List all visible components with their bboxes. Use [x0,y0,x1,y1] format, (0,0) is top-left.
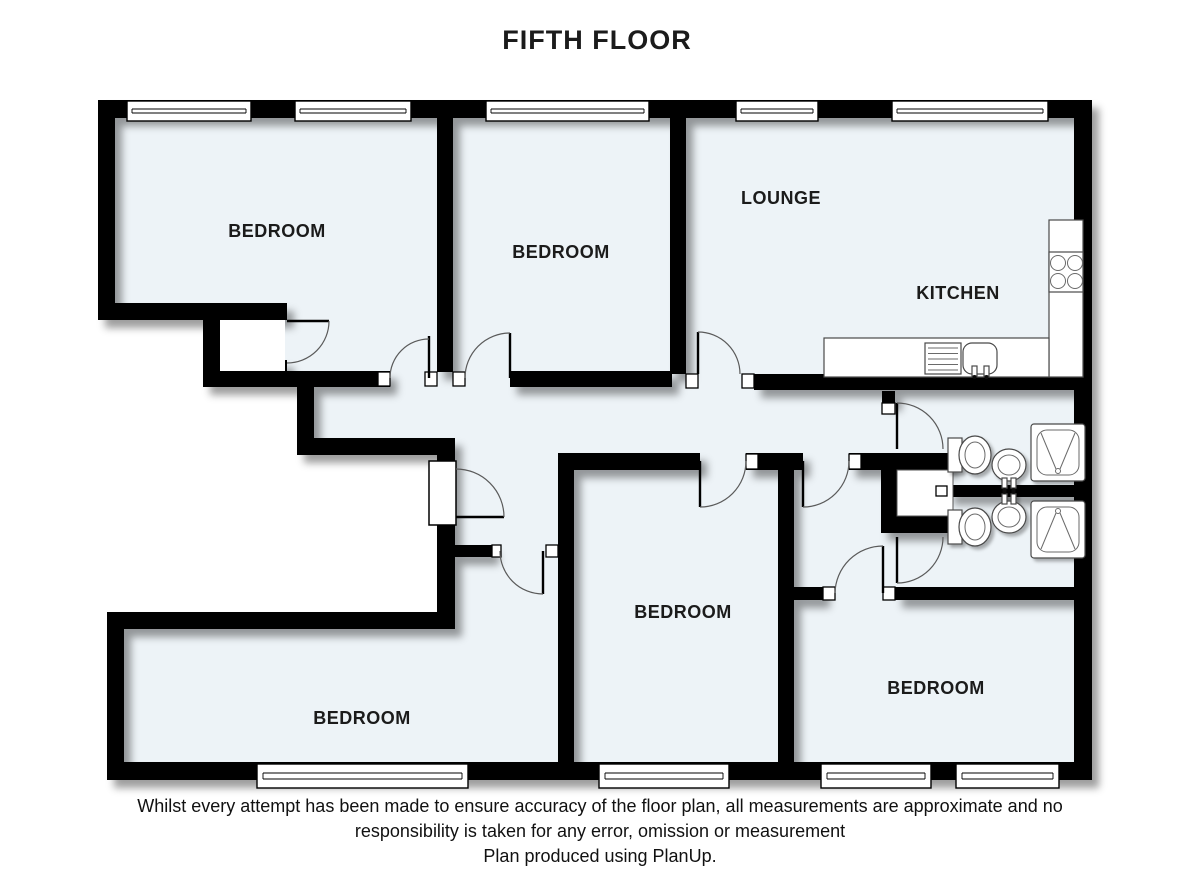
window [892,101,1048,121]
room-label-bedroom-bottom-left: BEDROOM [313,708,411,728]
shower [1031,501,1085,558]
wall-divider-bed2-lounge [670,118,686,374]
room-label-bedroom-top-middle: BEDROOM [512,242,610,262]
wall-bath-doorway-stub [882,391,895,403]
wall-bedroom4-right [778,453,794,763]
toilet [948,436,991,474]
wall-exterior-left [98,100,115,320]
disclaimer-line-3: Plan produced using PlanUp. [483,846,716,866]
wall-bedroom4-top-left [558,453,700,470]
wall-bedroom3-top-left [778,587,823,600]
wall-bed5-door [455,545,492,557]
kitchen-sink [925,343,997,379]
wall-bedroom4-left [558,453,574,763]
wall-lounge-bottom [754,374,824,390]
room-label-bedroom-bottom-middle: BEDROOM [634,602,732,622]
wall-bedroom3-top-right [895,587,1074,600]
floor-plan-canvas: FIFTH FLOOR [0,0,1200,872]
wall-bedroom1-bottom [98,303,287,320]
wall-lobby-top [849,453,953,470]
wall-bedroom5-top [107,612,444,629]
disclaimer-line-1: Whilst every attempt has been made to en… [137,796,1063,816]
room-label-bedroom-bottom-right: BEDROOM [887,678,985,698]
wall-divider-bed1-bed2 [437,118,453,372]
floorplan-page: FIFTH FLOOR [0,0,1200,872]
room-label-lounge: LOUNGE [741,188,821,208]
disclaimer: Whilst every attempt has been made to en… [137,796,1063,866]
window [127,101,251,121]
disclaimer-line-2: responsibility is taken for any error, o… [355,821,845,841]
cupboard-void [220,320,285,371]
wall-bedroom5-left [107,612,124,780]
wall-duct-bottom [881,516,953,533]
room-label-kitchen: KITCHEN [916,283,1000,303]
wall-hall-bottom [297,438,455,455]
shower [1031,424,1085,481]
window [257,764,468,788]
room-label-bedroom-top-left: BEDROOM [228,221,326,241]
window [956,764,1059,788]
wall-step-horizontal [203,371,390,387]
wall-bedroom2-bottom [510,371,672,387]
entrance-door-frame [429,461,456,525]
page-title: FIFTH FLOOR [502,25,691,55]
window [821,764,931,788]
window [295,101,411,121]
hob [1049,252,1083,292]
kitchen-counter-right [1049,220,1083,377]
window [736,101,818,121]
window [599,764,729,788]
toilet [948,508,991,546]
window [486,101,649,121]
